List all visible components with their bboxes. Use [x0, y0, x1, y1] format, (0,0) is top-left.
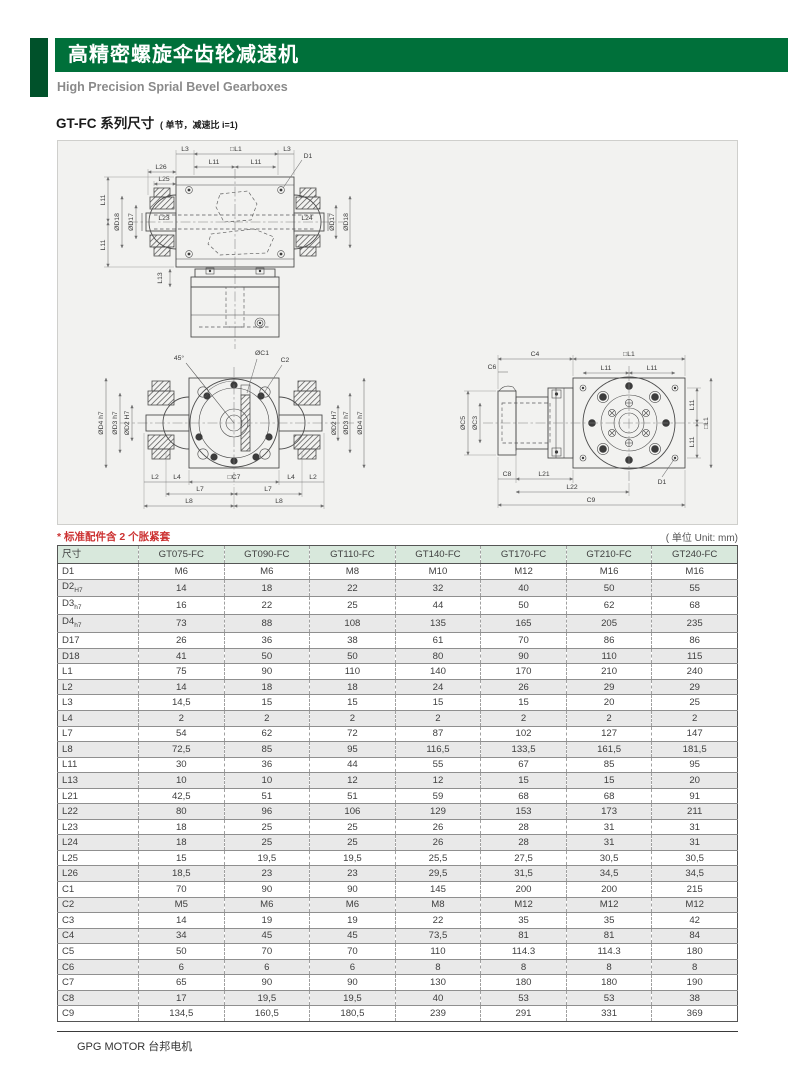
dim-value-cell: 90: [224, 975, 310, 991]
dim-label-cell: L23: [58, 819, 139, 835]
dim-value-cell: 31: [652, 819, 738, 835]
table-row: L228096106129153173211: [58, 804, 738, 820]
dim-value-cell: 32: [395, 579, 481, 597]
dim-value-cell: 180: [481, 975, 567, 991]
dim-value-cell: 210: [566, 664, 652, 680]
dim-value-cell: 70: [139, 882, 225, 898]
table-row: C1709090145200200215: [58, 882, 738, 898]
dim-label-cell: C4: [58, 928, 139, 944]
dim-value-cell: 31,5: [481, 866, 567, 882]
dim-value-cell: 291: [481, 1006, 567, 1022]
dim-label: C9: [587, 497, 596, 504]
dim-value-cell: 90: [224, 664, 310, 680]
dim-value-cell: 8: [395, 959, 481, 975]
dim-label: C4: [531, 351, 540, 358]
dim-value-cell: 18: [139, 835, 225, 851]
bottom-view: 45° ØC1 C2: [98, 350, 364, 509]
table-row: L754627287102127147: [58, 726, 738, 742]
dim-label: L8: [275, 498, 283, 505]
dim-label: L11: [689, 399, 696, 410]
dim-label: L3: [181, 146, 189, 153]
dim-label: L7: [196, 486, 204, 493]
dim-value-cell: 25: [224, 835, 310, 851]
dim-value-cell: 35: [481, 913, 567, 929]
dim-label: □L1: [703, 417, 710, 429]
dim-value-cell: 90: [224, 882, 310, 898]
dim-value-cell: 40: [481, 579, 567, 597]
dim-value-cell: 91: [652, 788, 738, 804]
dim-value-cell: 68: [566, 788, 652, 804]
dim-label: □L1: [623, 351, 635, 358]
dim-value-cell: 50: [139, 944, 225, 960]
dim-value-cell: 72: [310, 726, 396, 742]
dim-value-cell: 88: [224, 615, 310, 633]
dim-value-cell: 26: [481, 679, 567, 695]
column-header: GT075-FC: [139, 546, 225, 564]
dim-value-cell: 73: [139, 615, 225, 633]
dim-value-cell: 22: [395, 913, 481, 929]
dim-value-cell: M12: [652, 897, 738, 913]
dim-value-cell: 19,5: [224, 850, 310, 866]
table-row: D3h716222544506268: [58, 597, 738, 615]
dim-value-cell: M6: [310, 897, 396, 913]
dim-value-cell: 51: [224, 788, 310, 804]
dim-value-cell: 22: [310, 579, 396, 597]
dim-value-cell: 15: [139, 850, 225, 866]
dim-label: L7: [264, 486, 272, 493]
dim-value-cell: 26: [395, 819, 481, 835]
dim-value-cell: 90: [481, 648, 567, 664]
dim-value-cell: 75: [139, 664, 225, 680]
dim-value-cell: M12: [481, 564, 567, 580]
dim-label-cell: L2: [58, 679, 139, 695]
dim-value-cell: 73,5: [395, 928, 481, 944]
dim-value-cell: 6: [310, 959, 396, 975]
header-accent-strip: [30, 38, 48, 97]
dim-value-cell: 6: [139, 959, 225, 975]
dim-value-cell: 190: [652, 975, 738, 991]
dim-value-cell: 35: [566, 913, 652, 929]
dim-label: ØC1: [255, 350, 269, 357]
dim-value-cell: 147: [652, 726, 738, 742]
table-row: D1726363861708686: [58, 633, 738, 649]
dim-label-cell: L13: [58, 773, 139, 789]
dim-value-cell: M10: [395, 564, 481, 580]
dim-value-cell: 18: [224, 579, 310, 597]
dim-value-cell: 85: [566, 757, 652, 773]
dim-value-cell: 36: [224, 633, 310, 649]
column-header: GT110-FC: [310, 546, 396, 564]
dim-value-cell: 26: [395, 835, 481, 851]
dim-label: 45°: [174, 354, 185, 362]
dim-value-cell: 160,5: [224, 1006, 310, 1022]
table-row: L2318252526283131: [58, 819, 738, 835]
dim-value-cell: 70: [224, 944, 310, 960]
dim-label-cell: D18: [58, 648, 139, 664]
dim-value-cell: 30,5: [652, 850, 738, 866]
table-row: D4h77388108135165205235: [58, 615, 738, 633]
dim-value-cell: 86: [652, 633, 738, 649]
dim-value-cell: 15: [481, 695, 567, 711]
dim-label: ØD18: [343, 213, 350, 231]
dim-label: ØD18: [114, 213, 121, 231]
dim-value-cell: 31: [566, 835, 652, 851]
dim-label: L8: [185, 498, 193, 505]
section-title-text: GT-FC 系列尺寸: [56, 116, 154, 131]
dim-label: L11: [100, 239, 107, 250]
dim-label: ØD4 h7: [98, 411, 105, 435]
dim-value-cell: 14: [139, 579, 225, 597]
dim-value-cell: 70: [310, 944, 396, 960]
dim-value-cell: 180: [566, 975, 652, 991]
dim-value-cell: 8: [566, 959, 652, 975]
dim-value-cell: 25: [310, 597, 396, 615]
dim-value-cell: 2: [566, 711, 652, 727]
dim-value-cell: 45: [310, 928, 396, 944]
table-row: L314,5151515152025: [58, 695, 738, 711]
dim-value-cell: 12: [395, 773, 481, 789]
dim-value-cell: 95: [652, 757, 738, 773]
dim-value-cell: 31: [566, 819, 652, 835]
page-subtitle: High Precision Sprial Bevel Gearboxes: [57, 80, 288, 94]
dim-label-cell: L25: [58, 850, 139, 866]
column-header: GT240-FC: [652, 546, 738, 564]
dim-value-cell: 38: [310, 633, 396, 649]
dim-value-cell: 127: [566, 726, 652, 742]
dim-value-cell: 25: [310, 819, 396, 835]
dim-value-cell: 2: [310, 711, 396, 727]
dim-value-cell: 90: [310, 975, 396, 991]
dim-value-cell: M12: [566, 897, 652, 913]
dim-label: L3: [283, 146, 291, 153]
dim-value-cell: 205: [566, 615, 652, 633]
dim-value-cell: 29: [652, 679, 738, 695]
gearbox-drawing: L3 □L1 L3 L11 L11 D1 L26 L25 L11 L11: [58, 141, 737, 524]
page-title-text: 高精密螺旋伞齿轮减速机: [68, 44, 299, 66]
dim-label: C8: [503, 471, 512, 478]
dim-label-cell: D1: [58, 564, 139, 580]
dim-value-cell: 145: [395, 882, 481, 898]
dim-label-cell: C9: [58, 1006, 139, 1022]
dim-value-cell: 173: [566, 804, 652, 820]
dim-value-cell: 2: [395, 711, 481, 727]
dim-value-cell: 239: [395, 1006, 481, 1022]
dim-value-cell: 34: [139, 928, 225, 944]
dim-value-cell: 134,5: [139, 1006, 225, 1022]
dim-label: L13: [157, 272, 164, 284]
dim-label: L21: [538, 471, 550, 478]
dim-label: L24: [301, 215, 313, 222]
dim-label-cell: L8: [58, 742, 139, 758]
dim-label: ØD17: [329, 213, 336, 231]
dim-value-cell: 17: [139, 990, 225, 1006]
dim-value-cell: 50: [481, 597, 567, 615]
unit-note: ( 单位 Unit: mm): [666, 529, 738, 544]
dim-value-cell: 18: [310, 679, 396, 695]
dim-label: L2: [309, 474, 317, 481]
dim-value-cell: M12: [481, 897, 567, 913]
dim-label: L23: [158, 215, 170, 222]
dim-value-cell: 153: [481, 804, 567, 820]
table-row: C314191922353542: [58, 913, 738, 929]
table-row: C9134,5160,5180,5239291331369: [58, 1006, 738, 1022]
dim-value-cell: 6: [224, 959, 310, 975]
dim-label-cell: C7: [58, 975, 139, 991]
dim-label-cell: L7: [58, 726, 139, 742]
footer-brand: GPG MOTOR 台邦电机: [77, 1038, 192, 1054]
dim-value-cell: 51: [310, 788, 396, 804]
dim-value-cell: 19: [310, 913, 396, 929]
dim-value-cell: 62: [224, 726, 310, 742]
table-row: L17590110140170210240: [58, 664, 738, 680]
dim-value-cell: 22: [224, 597, 310, 615]
column-header: 尺寸: [58, 546, 139, 564]
dim-value-cell: 25: [310, 835, 396, 851]
dim-value-cell: 50: [566, 579, 652, 597]
dim-value-cell: 25,5: [395, 850, 481, 866]
dim-value-cell: 28: [481, 819, 567, 835]
dim-value-cell: 110: [566, 648, 652, 664]
dim-value-cell: M6: [139, 564, 225, 580]
dim-value-cell: 25: [224, 819, 310, 835]
dim-value-cell: 2: [139, 711, 225, 727]
dim-value-cell: M8: [395, 897, 481, 913]
dim-label-cell: L21: [58, 788, 139, 804]
note-standard-accessories: * 标准配件含 2 个胀紧套: [57, 529, 170, 544]
table-row: L2418252526283131: [58, 835, 738, 851]
dim-value-cell: 140: [395, 664, 481, 680]
table-row: L251519,519,525,527,530,530,5: [58, 850, 738, 866]
dim-value-cell: M6: [224, 897, 310, 913]
dim-label: L2: [151, 474, 159, 481]
column-header: GT210-FC: [566, 546, 652, 564]
dim-value-cell: 30: [139, 757, 225, 773]
dim-label: ØC5: [460, 416, 467, 430]
dim-value-cell: 19: [224, 913, 310, 929]
dim-value-cell: 70: [481, 633, 567, 649]
dim-value-cell: 14: [139, 679, 225, 695]
dim-label: C2: [281, 357, 290, 364]
table-row: L214181824262929: [58, 679, 738, 695]
dimensions-table: 尺寸GT075-FCGT090-FCGT110-FCGT140-FCGT170-…: [57, 545, 738, 1022]
dim-label: L4: [173, 474, 181, 481]
dim-value-cell: M16: [566, 564, 652, 580]
dim-value-cell: M8: [310, 564, 396, 580]
dim-label-cell: C5: [58, 944, 139, 960]
dim-value-cell: 27,5: [481, 850, 567, 866]
dim-label-cell: C1: [58, 882, 139, 898]
dim-value-cell: 240: [652, 664, 738, 680]
dim-value-cell: 14,5: [139, 695, 225, 711]
dim-label-cell: C3: [58, 913, 139, 929]
dim-value-cell: 38: [652, 990, 738, 1006]
dim-label-cell: C2: [58, 897, 139, 913]
dim-value-cell: 61: [395, 633, 481, 649]
dim-value-cell: 180: [652, 944, 738, 960]
dim-value-cell: 50: [224, 648, 310, 664]
table-header-row: 尺寸GT075-FCGT090-FCGT110-FCGT140-FCGT170-…: [58, 546, 738, 564]
dim-value-cell: 68: [652, 597, 738, 615]
dim-value-cell: 108: [310, 615, 396, 633]
dim-value-cell: 10: [224, 773, 310, 789]
column-header: GT090-FC: [224, 546, 310, 564]
dim-value-cell: 23: [310, 866, 396, 882]
dim-value-cell: 29: [566, 679, 652, 695]
dim-label-cell: L3: [58, 695, 139, 711]
dim-value-cell: 24: [395, 679, 481, 695]
dim-value-cell: 90: [310, 882, 396, 898]
dim-value-cell: 110: [310, 664, 396, 680]
dim-value-cell: 114.3: [481, 944, 567, 960]
dim-value-cell: 29,5: [395, 866, 481, 882]
dim-value-cell: 16: [139, 597, 225, 615]
table-row: L872,58595116,5133,5161,5181,5: [58, 742, 738, 758]
table-row: L1310101212151520: [58, 773, 738, 789]
dim-value-cell: 106: [310, 804, 396, 820]
dim-value-cell: 235: [652, 615, 738, 633]
dim-value-cell: 215: [652, 882, 738, 898]
dim-value-cell: 42,5: [139, 788, 225, 804]
table-row: L2618,5232329,531,534,534,5: [58, 866, 738, 882]
dim-value-cell: 116,5: [395, 742, 481, 758]
dim-value-cell: 130: [395, 975, 481, 991]
table-row: C66668888: [58, 959, 738, 975]
dim-value-cell: 45: [224, 928, 310, 944]
dim-value-cell: 80: [139, 804, 225, 820]
dim-value-cell: 15: [566, 773, 652, 789]
dim-value-cell: 200: [566, 882, 652, 898]
dim-value-cell: 54: [139, 726, 225, 742]
dim-value-cell: 44: [310, 757, 396, 773]
dim-value-cell: 19,5: [310, 990, 396, 1006]
table-row: C5507070110114.3114.3180: [58, 944, 738, 960]
dim-value-cell: 2: [481, 711, 567, 727]
page: 高精密螺旋伞齿轮减速机 High Precision Sprial Bevel …: [0, 0, 794, 1077]
dim-value-cell: 67: [481, 757, 567, 773]
dim-value-cell: 30,5: [566, 850, 652, 866]
dim-label: ØD2 H7: [331, 411, 338, 436]
column-header: GT140-FC: [395, 546, 481, 564]
dim-label-cell: D3h7: [58, 597, 139, 615]
dim-label: ØD3 h7: [112, 411, 119, 435]
dim-value-cell: 331: [566, 1006, 652, 1022]
dim-value-cell: 40: [395, 990, 481, 1006]
dim-value-cell: 200: [481, 882, 567, 898]
dim-value-cell: 95: [310, 742, 396, 758]
dim-label-cell: L22: [58, 804, 139, 820]
dim-label-cell: L24: [58, 835, 139, 851]
dim-value-cell: 23: [224, 866, 310, 882]
dim-label: C6: [488, 364, 497, 371]
dim-label-cell: D17: [58, 633, 139, 649]
dim-value-cell: 86: [566, 633, 652, 649]
dim-value-cell: 34,5: [652, 866, 738, 882]
dim-label: ØD2 H7: [124, 411, 131, 436]
dim-label: ØD3 h7: [343, 411, 350, 435]
dim-value-cell: 55: [395, 757, 481, 773]
dim-value-cell: 14: [139, 913, 225, 929]
dim-value-cell: 65: [139, 975, 225, 991]
side-view: C4 □L1 C6 L11 L11 ØC5 ØC3 L11 L11: [460, 351, 711, 508]
dim-label-cell: L26: [58, 866, 139, 882]
dim-value-cell: 110: [395, 944, 481, 960]
column-header: GT170-FC: [481, 546, 567, 564]
dim-label-cell: D2H7: [58, 579, 139, 597]
dim-value-cell: 36: [224, 757, 310, 773]
dim-label-cell: L1: [58, 664, 139, 680]
dim-label: L4: [287, 474, 295, 481]
dim-label-cell: L11: [58, 757, 139, 773]
table-row: C2M5M6M6M8M12M12M12: [58, 897, 738, 913]
dim-value-cell: 20: [652, 773, 738, 789]
dim-value-cell: 15: [310, 695, 396, 711]
dim-value-cell: 59: [395, 788, 481, 804]
dim-value-cell: M5: [139, 897, 225, 913]
dim-value-cell: 15: [481, 773, 567, 789]
dim-value-cell: 96: [224, 804, 310, 820]
dim-value-cell: 10: [139, 773, 225, 789]
dim-label: □C7: [228, 474, 241, 481]
dim-value-cell: 34,5: [566, 866, 652, 882]
dim-label-cell: C6: [58, 959, 139, 975]
dim-value-cell: 53: [481, 990, 567, 1006]
dim-value-cell: 84: [652, 928, 738, 944]
dim-label: L22: [566, 484, 578, 491]
table-row: D184150508090110115: [58, 648, 738, 664]
section-title: GT-FC 系列尺寸 ( 单节，减速比 i=1): [56, 112, 238, 132]
dim-label: L11: [209, 159, 220, 166]
dim-value-cell: 102: [481, 726, 567, 742]
dim-value-cell: 161,5: [566, 742, 652, 758]
dim-label: ØD4 h7: [357, 411, 364, 435]
table-row: C7659090130180180190: [58, 975, 738, 991]
dim-value-cell: 133,5: [481, 742, 567, 758]
dim-label: D1: [658, 479, 667, 486]
dim-label: L11: [601, 365, 612, 372]
dim-value-cell: 2: [224, 711, 310, 727]
dim-label-cell: D4h7: [58, 615, 139, 633]
dim-value-cell: 369: [652, 1006, 738, 1022]
dim-label-cell: L4: [58, 711, 139, 727]
dim-value-cell: 42: [652, 913, 738, 929]
dim-value-cell: 2: [652, 711, 738, 727]
dim-value-cell: M16: [652, 564, 738, 580]
dim-value-cell: 18,5: [139, 866, 225, 882]
dim-value-cell: 135: [395, 615, 481, 633]
section-title-note: ( 单节，减速比 i=1): [160, 120, 238, 130]
dim-value-cell: 87: [395, 726, 481, 742]
dim-label-cell: C8: [58, 990, 139, 1006]
dim-value-cell: 25: [652, 695, 738, 711]
dim-value-cell: 31: [652, 835, 738, 851]
dim-label: L11: [251, 159, 262, 166]
footer-divider: [57, 1031, 738, 1032]
dim-value-cell: 44: [395, 597, 481, 615]
table-row: L2142,5515159686891: [58, 788, 738, 804]
dim-value-cell: 80: [395, 648, 481, 664]
dim-label: D1: [304, 153, 313, 160]
dim-value-cell: 55: [652, 579, 738, 597]
dim-label: L26: [155, 164, 167, 171]
dim-value-cell: 18: [139, 819, 225, 835]
dim-value-cell: 181,5: [652, 742, 738, 758]
technical-drawing-panel: L3 □L1 L3 L11 L11 D1 L26 L25 L11 L11: [57, 140, 738, 525]
dim-value-cell: 211: [652, 804, 738, 820]
dim-value-cell: 12: [310, 773, 396, 789]
table-row: D2H714182232405055: [58, 579, 738, 597]
front-view: L3 □L1 L3 L11 L11 D1 L26 L25 L11 L11: [100, 146, 350, 349]
dim-value-cell: 165: [481, 615, 567, 633]
